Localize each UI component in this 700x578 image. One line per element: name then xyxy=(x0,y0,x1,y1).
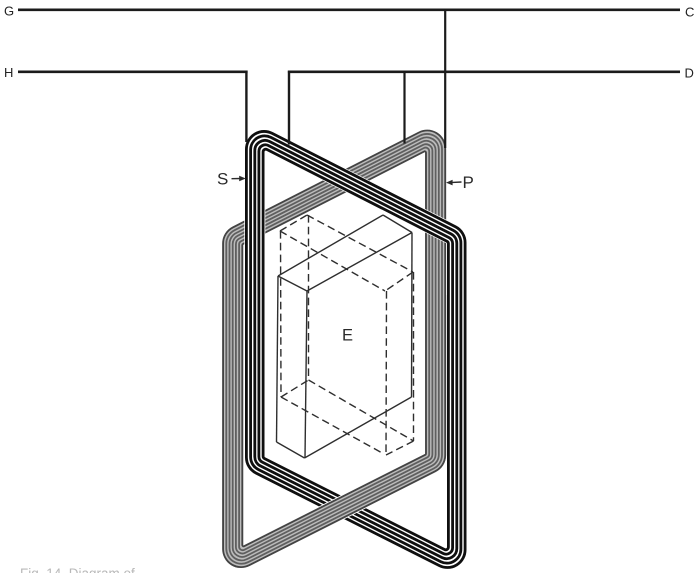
svg-text:C: C xyxy=(685,5,694,20)
svg-text:H: H xyxy=(4,65,13,80)
svg-text:S: S xyxy=(217,170,228,189)
svg-text:E: E xyxy=(342,326,353,344)
svg-text:D: D xyxy=(685,66,694,81)
svg-text:Fig. 14. Diagram of: Fig. 14. Diagram of xyxy=(20,566,135,573)
svg-text:G: G xyxy=(4,4,14,19)
svg-text:P: P xyxy=(463,173,474,192)
